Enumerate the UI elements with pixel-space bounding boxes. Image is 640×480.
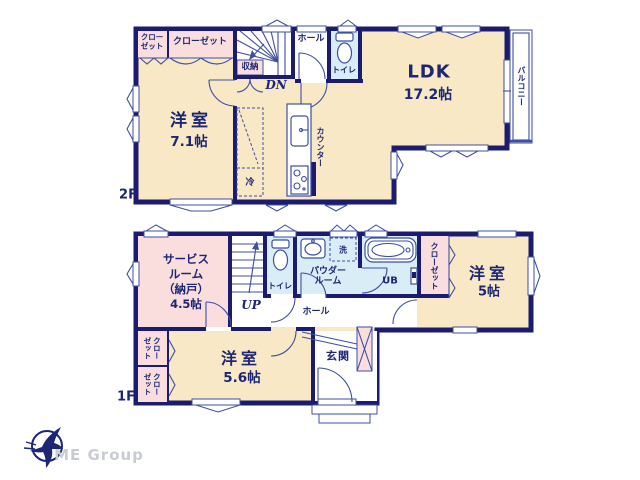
- porch-step-1: [312, 405, 377, 414]
- room5-size-label: 5帖: [478, 286, 500, 301]
- floor2-hall-label: ホール: [297, 34, 324, 44]
- floor-plan-page: クロー ゼット クローゼット 収納 DN ホール トイレ LDK 17.2帖 洋…: [0, 0, 640, 480]
- floor1-hall-label: ホール: [302, 307, 329, 317]
- floor1-toilet-label: トイレ: [268, 281, 292, 290]
- balcony-label: バルコニー: [516, 66, 526, 106]
- kitchen-counter: [287, 104, 311, 196]
- floor-plan-drawing: [0, 0, 640, 480]
- floor2-room-size-label: 7.1帖: [170, 135, 207, 151]
- floor1-stairs-area: [232, 236, 263, 298]
- floor1-closet-bottom-2-label: クロー ゼット: [143, 373, 162, 396]
- logo-company-name: ME Group: [54, 446, 144, 464]
- floor2-toilet-label: トイレ: [332, 65, 356, 74]
- floor1-closet-bottom-1-label: クロー ゼット: [143, 337, 162, 360]
- ldk-label: LDK: [407, 63, 450, 84]
- floor2-toilet-fixture: [336, 33, 353, 63]
- unit-bath-label: UB: [382, 275, 398, 287]
- shoe-cabinet: [357, 327, 372, 371]
- counter-label: カウンター: [315, 127, 325, 167]
- floor2-label: 2F: [119, 189, 137, 204]
- floor1-stairs-up-label: UP: [241, 299, 261, 313]
- room5-label: 洋室: [469, 265, 509, 283]
- room56-label: 洋室: [221, 350, 261, 368]
- floor1-closet-right-label: クローゼット: [429, 242, 439, 290]
- floor1-toilet-fixture: [272, 240, 289, 270]
- floor1-label: 1F: [117, 391, 135, 406]
- entrance-label: 玄関: [326, 351, 350, 364]
- powder-sink: [301, 239, 325, 258]
- ldk-size-label: 17.2帖: [404, 87, 453, 103]
- fridge-label: 冷: [245, 178, 254, 188]
- floor2-room-label: 洋室: [170, 112, 212, 132]
- floor2-storage-label: 収納: [241, 63, 258, 73]
- powder-room-label: パウダー ルーム: [310, 267, 346, 288]
- floor2-closet-small-label: クロー ゼット: [141, 33, 164, 50]
- washer-label: 洗: [339, 245, 347, 254]
- floor2-stairs-dn-label: DN: [265, 79, 286, 93]
- floor2-closet-large-label: クローゼット: [173, 37, 227, 47]
- service-room-label: サービス ルーム （納戸） 4.5帖: [163, 252, 209, 312]
- room56-size-label: 5.6帖: [223, 371, 260, 387]
- kitchen-stove: [291, 166, 308, 194]
- porch-step-2: [319, 414, 370, 423]
